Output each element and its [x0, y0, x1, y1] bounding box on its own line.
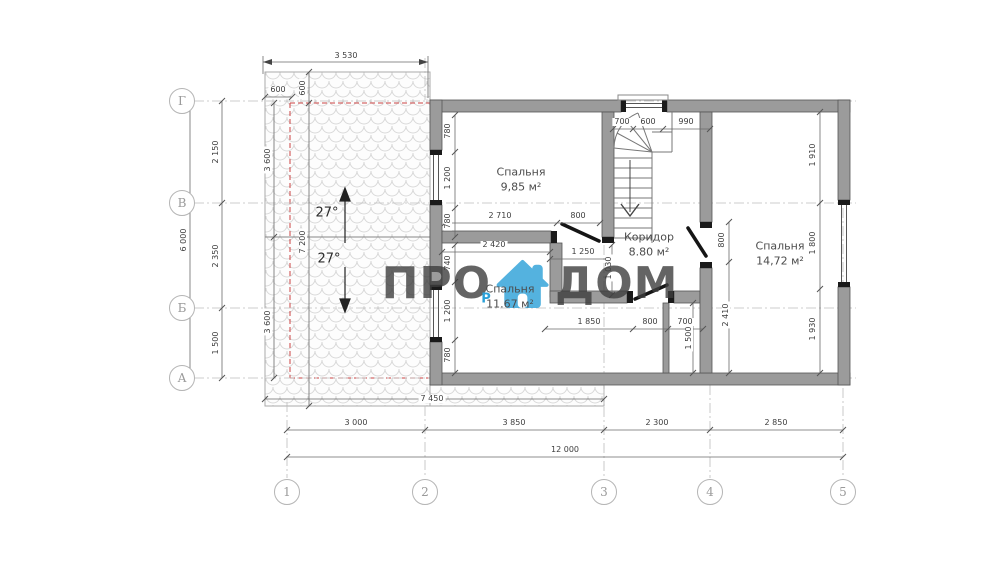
dimension-label: 1 500: [212, 330, 220, 357]
room-area: 8.80 м²: [629, 246, 670, 259]
dimension-label: 600: [638, 118, 657, 126]
dimension-label: 1 800: [809, 230, 817, 257]
dimension-label: 1 910: [809, 142, 817, 169]
dimension-label: 1 500: [685, 325, 693, 352]
roof-slope-label: 27°: [313, 207, 340, 220]
dimension-label: 2 300: [644, 419, 671, 427]
axis-bubble-2: 2: [412, 479, 438, 505]
room-area: 14,72 м²: [756, 255, 804, 268]
dimension-label: 2 420: [481, 241, 508, 249]
stairs: [614, 112, 672, 243]
dimension-label: 1 200: [444, 165, 452, 192]
room-label: Коридор8.80 м²: [624, 230, 674, 261]
dimension-label: 12 000: [549, 446, 581, 454]
dimension-label: 7 450: [419, 395, 446, 403]
dimension-label: 800: [718, 230, 726, 249]
dimension-label: 7 200: [299, 229, 307, 256]
axis-bubble-Г: Г: [169, 88, 195, 114]
dimension-label: 1 850: [576, 318, 603, 326]
axis-bubble-4: 4: [697, 479, 723, 505]
axis-bubble-3: 3: [591, 479, 617, 505]
room-area: 9,85 м²: [501, 181, 542, 194]
dimension-label: 700: [612, 118, 631, 126]
axis-bubble-В: В: [169, 190, 195, 216]
dimension-label: 2 150: [212, 139, 220, 166]
floor-plan-page: 3 5306006006 0002 1502 3501 5003 6003 60…: [0, 0, 1000, 563]
dimension-label: 2 850: [763, 419, 790, 427]
room-name: Коридор: [624, 231, 674, 244]
dimension-label: 600: [299, 78, 307, 97]
room-area: 11.67 м²: [486, 298, 534, 311]
room-label: Спальня9,85 м²: [497, 165, 546, 196]
watermark-text-right: ДОМ: [555, 262, 678, 306]
room-name: Спальня: [497, 166, 546, 179]
axis-bubble-1: 1: [274, 479, 300, 505]
dimension-label: 780: [444, 211, 452, 230]
axis-bubble-А: А: [169, 365, 195, 391]
dimension-label: 2 350: [212, 243, 220, 270]
room-label: Спальня11.67 м²: [486, 282, 535, 313]
dimension-label: 2 710: [487, 212, 514, 220]
dimension-label: 3 000: [343, 419, 370, 427]
dimension-label: 1 250: [570, 248, 597, 256]
dimension-label: 2 410: [722, 302, 730, 329]
dimension-label: 1 930: [809, 316, 817, 343]
dimension-label: 990: [676, 118, 695, 126]
dimension-label: 600: [268, 86, 287, 94]
axis-bubble-Б: Б: [169, 295, 195, 321]
axis-bubble-5: 5: [830, 479, 856, 505]
dimension-label: 3 850: [501, 419, 528, 427]
roof-slope-label: 27°: [315, 253, 342, 266]
dimension-label: 780: [444, 345, 452, 364]
watermark-text-left: ПРО: [382, 262, 491, 306]
dimension-label: 800: [640, 318, 659, 326]
dimension-label: 3 600: [264, 309, 272, 336]
room-name: Спальня: [756, 240, 805, 253]
dimension-label: 3 530: [333, 52, 360, 60]
dimension-label: 780: [444, 121, 452, 140]
room-label: Спальня14,72 м²: [756, 239, 805, 270]
dimension-label: 6 000: [180, 227, 188, 254]
dimension-label: 800: [568, 212, 587, 220]
dimension-label: 3 600: [264, 147, 272, 174]
room-name: Спальня: [486, 283, 535, 296]
